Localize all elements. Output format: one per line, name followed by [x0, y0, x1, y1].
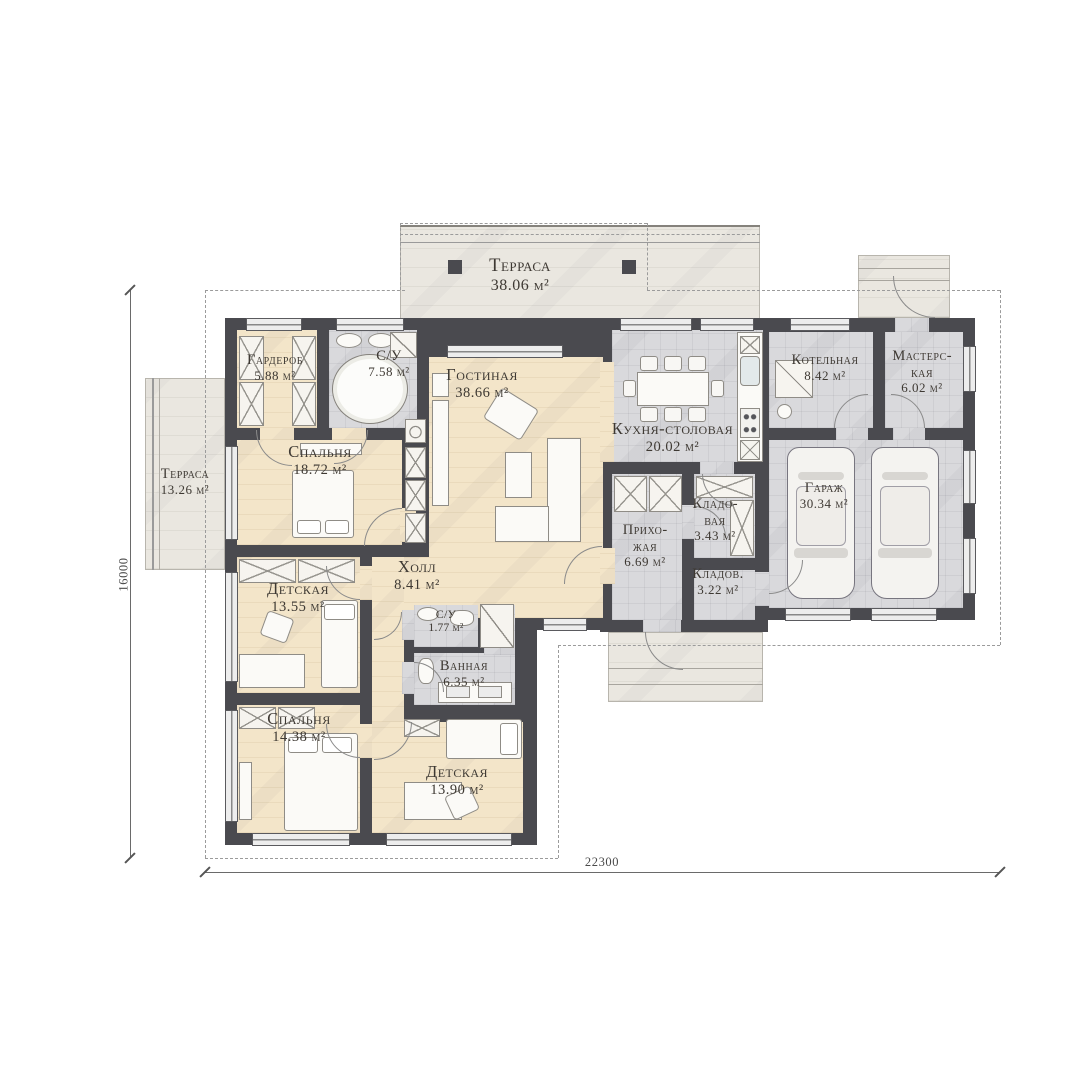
- roof-outline: [647, 290, 1000, 291]
- roof-outline: [205, 290, 405, 291]
- wardrobe: [614, 476, 647, 512]
- coffee-table: [505, 452, 532, 498]
- room-label-kitchen: Кухня-столовая20.02 м²: [605, 420, 740, 455]
- car-windshield: [878, 548, 932, 558]
- window: [225, 446, 238, 540]
- room-label-entry-hall: Прихо­жая6.69 м²: [616, 522, 674, 570]
- door-gap-bedroom2: [360, 724, 372, 758]
- window: [225, 710, 238, 822]
- car-top-view: [871, 447, 939, 599]
- room-label-boiler: Котельная8.42 м²: [777, 352, 873, 383]
- window: [963, 538, 976, 594]
- window: [225, 572, 238, 682]
- room-label-workshop: Мастерс­кая6.02 м²: [886, 348, 958, 396]
- kitchen-cabinet: [740, 336, 760, 354]
- shower: [480, 604, 514, 648]
- roof-outline: [558, 645, 1000, 646]
- water-heater: [777, 404, 792, 419]
- desk: [239, 654, 305, 688]
- door-gap-wc: [402, 610, 414, 640]
- window: [963, 346, 976, 392]
- terrace-roof-line2: [400, 242, 760, 243]
- chair: [640, 356, 658, 371]
- chair: [688, 356, 706, 371]
- closet: [405, 447, 426, 478]
- roof-outline: [647, 223, 648, 290]
- room-label-garage: Гараж30.34 м²: [776, 480, 872, 511]
- chair: [711, 380, 724, 397]
- room-label-wc: С/У1.77 м²: [414, 608, 478, 635]
- stove: [740, 408, 760, 438]
- room-label-kidsroom1: Детская13.55 м²: [239, 580, 357, 615]
- car-windshield: [794, 548, 848, 558]
- door-gap-workshop: [893, 428, 925, 440]
- window: [386, 833, 512, 846]
- window: [700, 318, 754, 331]
- pillow: [325, 520, 349, 534]
- tv-stand: [432, 400, 449, 506]
- door-gap-boiler: [836, 428, 868, 440]
- dimension-width-label: 22300: [560, 855, 644, 870]
- window: [252, 833, 350, 846]
- door-gap-garage: [755, 572, 769, 606]
- door-gap-kidsroom1: [360, 566, 372, 600]
- dimension-line-width: [205, 872, 1000, 873]
- room-label-terrace-top: Терраса38.06 м²: [430, 256, 610, 295]
- sofa: [547, 438, 581, 542]
- sofa: [495, 506, 549, 542]
- room-label-bedroom1: Спальня18.72 м²: [260, 443, 380, 478]
- room-label-wardrobe: Гарде­роб5.88 м²: [246, 352, 304, 383]
- room-label-terrace-left: Терраса13.26 м²: [147, 466, 223, 497]
- car-roof: [880, 486, 930, 546]
- roof-outline: [400, 223, 647, 224]
- roof-outline: [205, 290, 206, 858]
- roof-outline: [558, 645, 559, 858]
- shelf: [239, 762, 252, 820]
- door-gap-entrance: [643, 620, 681, 632]
- room-label-storage2: Кладов.3.22 м²: [682, 566, 754, 597]
- room-label-living: Гостиная38.66 м²: [412, 366, 552, 401]
- chair: [664, 356, 682, 371]
- garage-door: [785, 608, 851, 621]
- roof-outline: [205, 858, 558, 859]
- wardrobe: [239, 382, 264, 426]
- window: [336, 318, 404, 331]
- opening-hall-entry: [600, 548, 615, 584]
- porch-step: [608, 684, 763, 685]
- kitchen-sink: [740, 356, 760, 386]
- room-label-bedroom2: Спальня14.38 м²: [243, 710, 355, 745]
- door-gap-kidsroom2: [372, 705, 404, 722]
- window: [790, 318, 850, 331]
- car-rear-window: [882, 472, 928, 480]
- window: [543, 618, 587, 631]
- sink: [336, 333, 362, 348]
- chair: [623, 380, 636, 397]
- door-gap-bath: [402, 662, 414, 694]
- room-label-bath: Ванная6.35 м²: [416, 658, 512, 689]
- room-label-storage1: Кладо­вая3.43 м²: [688, 496, 742, 544]
- dining-table: [637, 372, 709, 406]
- entry-porch: [608, 632, 763, 702]
- terrace-roof-line: [400, 234, 760, 235]
- closet: [405, 480, 426, 511]
- window: [963, 450, 976, 504]
- dimension-height-label: 16000: [117, 545, 132, 605]
- porch-step: [608, 668, 763, 669]
- closet: [405, 513, 426, 543]
- kitchen-cabinet: [740, 440, 760, 460]
- garage-door: [871, 608, 937, 621]
- window: [246, 318, 302, 331]
- roof-outline: [1000, 290, 1001, 645]
- window: [447, 345, 563, 358]
- pillow: [500, 723, 518, 755]
- roof-outline: [400, 223, 401, 290]
- window: [620, 318, 692, 331]
- room-label-hall: Холл8.41 м²: [372, 558, 462, 593]
- wardrobe: [292, 382, 316, 426]
- pillow: [297, 520, 321, 534]
- washing-machine: [405, 419, 426, 443]
- floor-plan: 16000 22300: [0, 0, 1080, 1080]
- room-label-kidsroom2: Детская13.90 м²: [402, 763, 512, 798]
- porch-step: [858, 268, 950, 269]
- door-gap-workshop-entry: [895, 318, 929, 332]
- door-gap-kitchen-storage: [700, 462, 734, 474]
- car-rear-window: [798, 472, 844, 480]
- terrace-roof-edge: [400, 225, 760, 227]
- terrace-column: [622, 260, 636, 274]
- wardrobe: [649, 476, 682, 512]
